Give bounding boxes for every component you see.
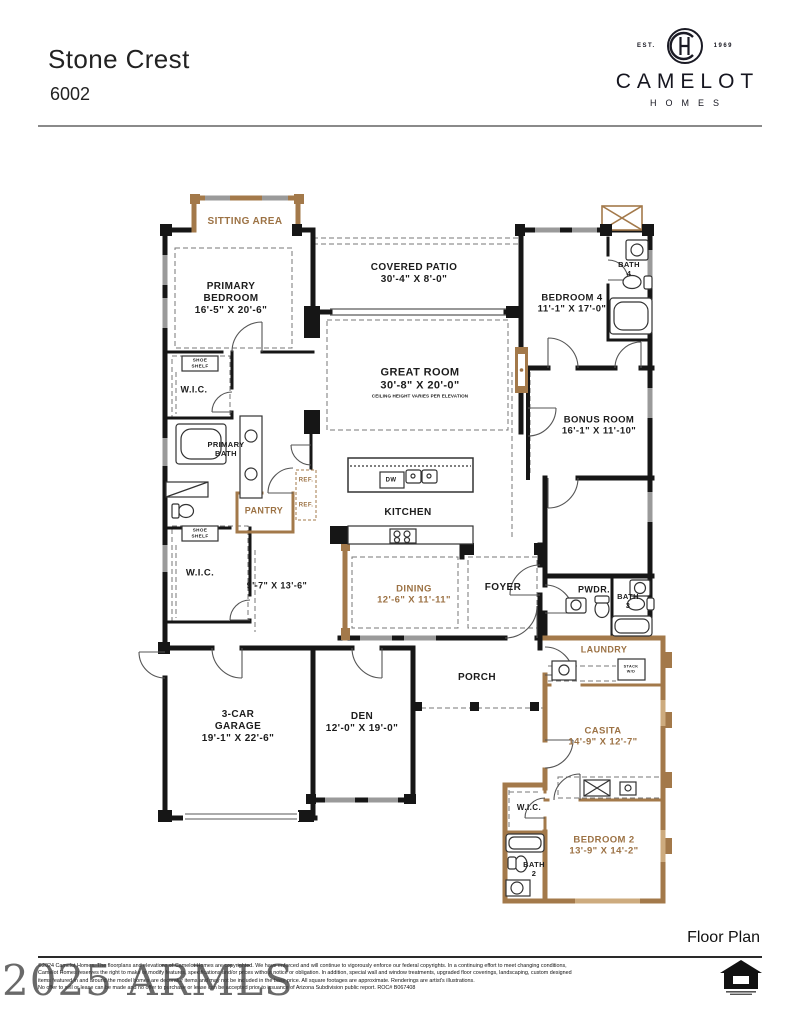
room-label-ref-2: REF.	[299, 502, 314, 509]
room-label-den: DEN12'-0" X 19'-0"	[326, 711, 399, 735]
room-label-wic-3: W.I.C.	[517, 803, 541, 813]
room-label-dw: DW	[386, 477, 397, 484]
room-label-wic-2: W.I.C.	[186, 567, 214, 578]
room-label-ref-1: REF.	[299, 477, 314, 484]
room-label-primary-bedroom: PRIMARYBEDROOM16'-5" X 20'-6"	[195, 281, 268, 317]
room-label-great-room: GREAT ROOM30'-8" X 20'-0"CEILING HEIGHT …	[372, 367, 468, 400]
armls-watermark: 2025 ARMLS	[2, 956, 294, 1005]
floor-plan-sheet: Stone Crest 6002 EST. 1969 CAMELOT HOMES	[0, 0, 800, 1036]
room-label-primary-bath: PRIMARYBATH	[207, 440, 244, 458]
room-label-pantry: PANTRY	[245, 506, 283, 517]
floor-plan-caption: Floor Plan	[687, 929, 760, 947]
room-label-garage: 3-CARGARAGE19'-1" X 22'-6"	[202, 709, 275, 745]
room-label-pwdr: PWDR.	[578, 585, 610, 596]
room-label-bonus-room: BONUS ROOM16'-1" X 11'-10"	[562, 415, 636, 438]
room-label-sitting-area: SITTING AREA	[208, 216, 283, 228]
room-label-bath-2: BATH2	[523, 860, 545, 878]
room-label-dining: DINING12'-6" X 11'-11"	[377, 584, 451, 607]
room-label-porch: PORCH	[458, 672, 496, 684]
equal-housing-icon	[718, 958, 764, 996]
room-label-bath-4: BATH4	[618, 260, 640, 278]
garage-door	[183, 812, 299, 821]
patio-slider	[330, 309, 506, 315]
room-label-covered-patio: COVERED PATIO30'-4" X 8'-0"	[371, 262, 458, 286]
room-label-wic-1: W.I.C.	[181, 385, 208, 396]
room-label-foyer: FOYER	[485, 582, 521, 594]
room-label-flex-space-dims: 9'-7" X 13'-6"	[247, 581, 307, 592]
room-label-bedroom-2: BEDROOM 213'-9" X 14'-2"	[569, 835, 638, 858]
room-label-shoe-shelf-1: SHOESHELF	[191, 358, 208, 369]
room-label-casita: CASITA14'-9" X 12'-7"	[568, 726, 637, 749]
pocket-door	[518, 354, 525, 386]
room-label-bath-3: BATH3	[617, 592, 639, 610]
room-label-laundry: LAUNDRY	[581, 645, 627, 656]
room-label-shoe-shelf-2: SHOESHELF	[191, 528, 208, 539]
room-label-bedroom-4: BEDROOM 411'-1" X 17'-0"	[538, 293, 607, 316]
room-label-kitchen: KITCHEN	[384, 507, 431, 519]
room-label-stack-wd: STACKW/D	[624, 664, 639, 673]
